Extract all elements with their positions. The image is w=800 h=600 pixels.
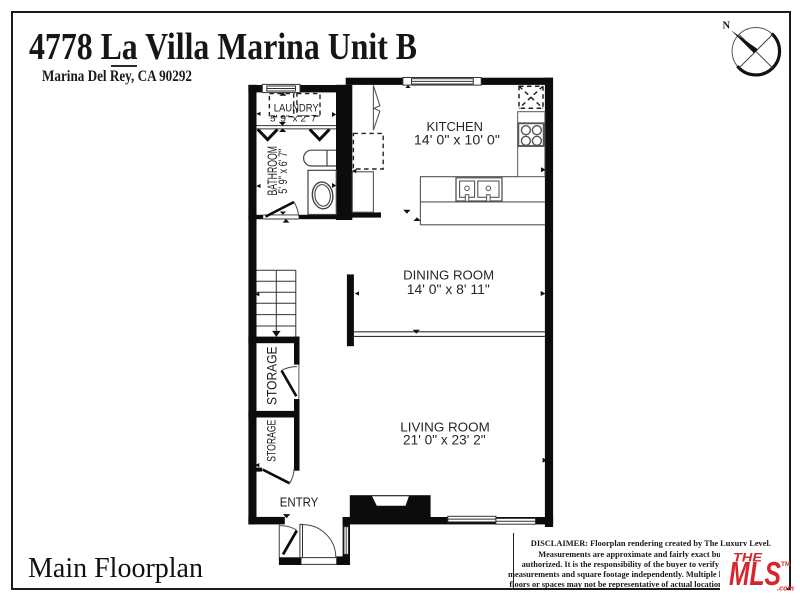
svg-text:STORAGE: STORAGE (265, 420, 279, 462)
svg-text:14' 0" x 8' 11": 14' 0" x 8' 11" (407, 282, 490, 297)
svg-text:STORAGE: STORAGE (263, 346, 279, 405)
svg-text:ENTRY: ENTRY (280, 496, 319, 510)
svg-text:5' 9" x 2' 7": 5' 9" x 2' 7" (270, 114, 320, 125)
svg-text:MLS: MLS (729, 555, 781, 592)
svg-text:TM: TM (781, 561, 790, 568)
svg-text:.com: .com (777, 584, 794, 593)
svg-text:5' 9" x 6' 7": 5' 9" x 6' 7" (276, 149, 290, 194)
svg-text:14' 0" x 10' 0": 14' 0" x 10' 0" (414, 132, 500, 147)
svg-text:DINING ROOM: DINING ROOM (403, 268, 494, 283)
svg-text:21' 0" x 23' 2": 21' 0" x 23' 2" (403, 432, 486, 447)
